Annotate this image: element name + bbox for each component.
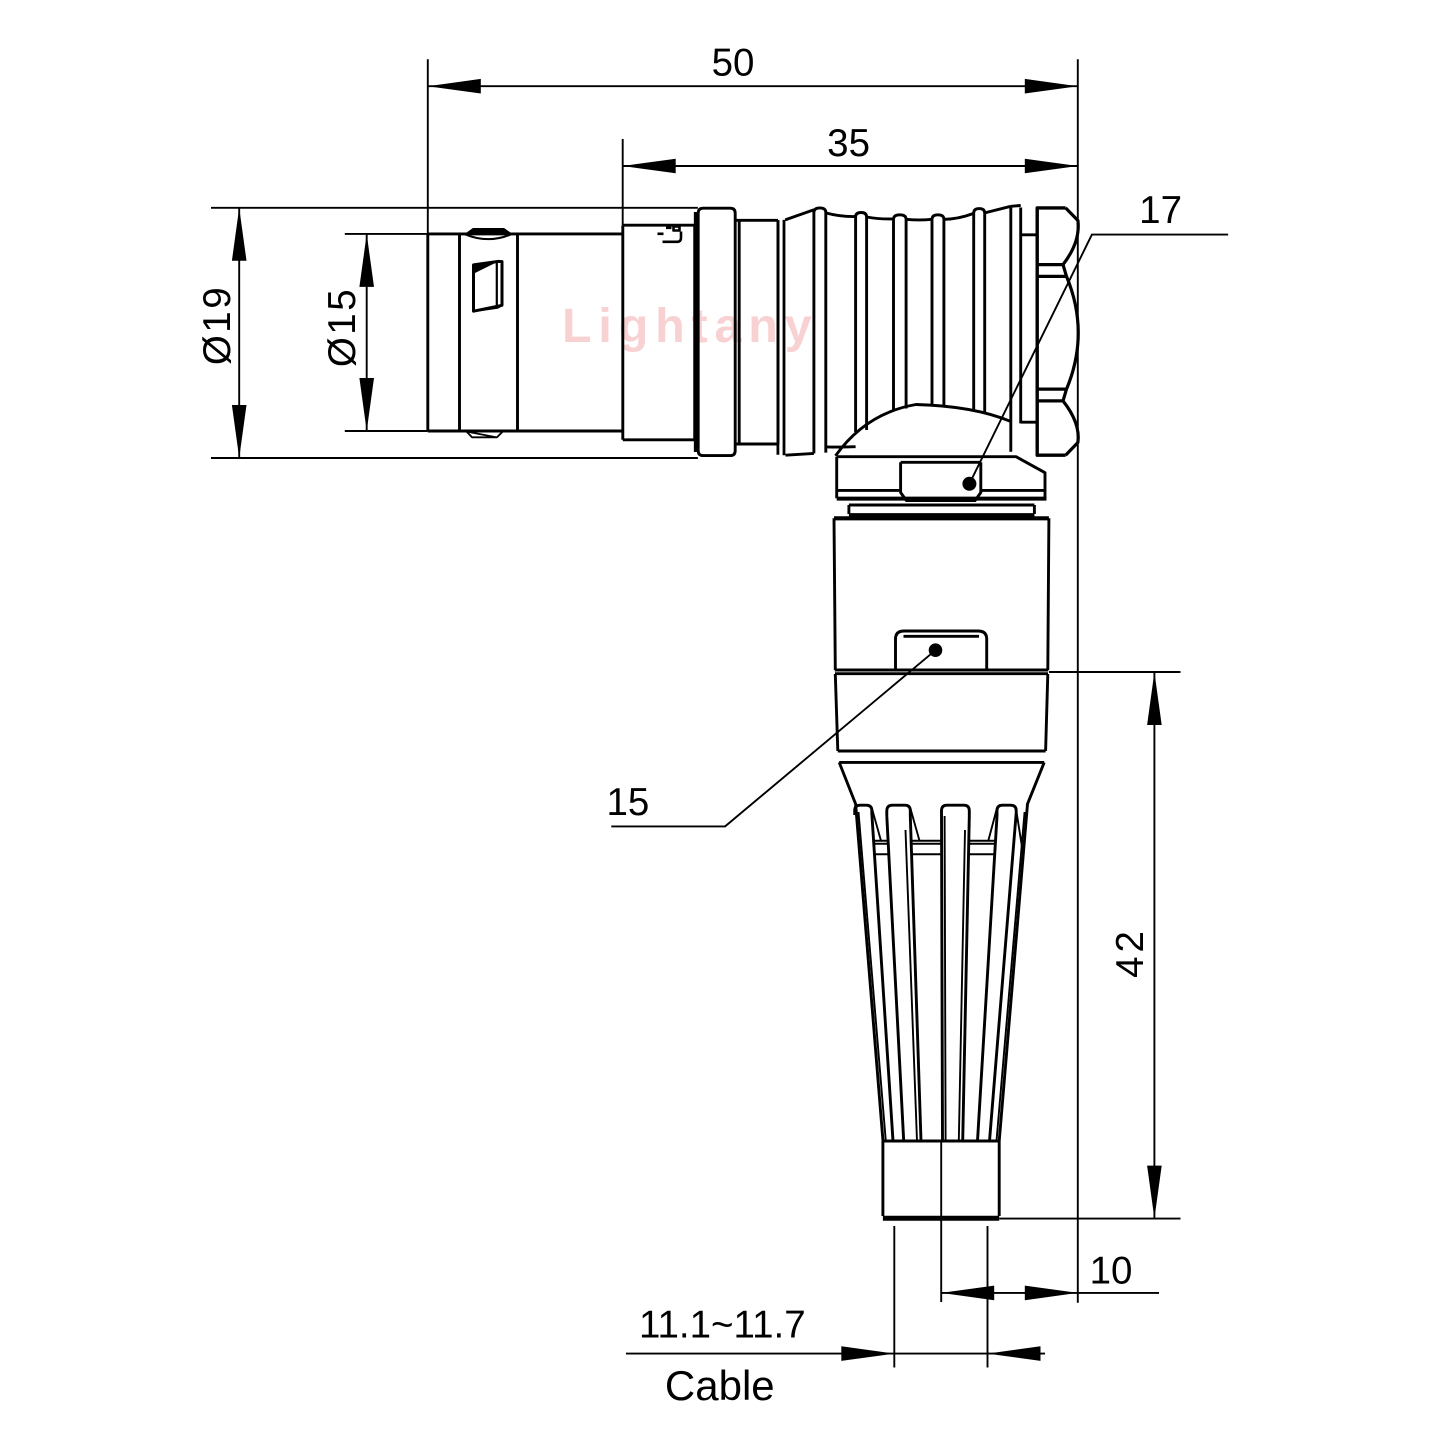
svg-text:Ø19: Ø19 xyxy=(196,285,239,365)
svg-text:42: 42 xyxy=(1109,927,1152,978)
svg-text:Cable: Cable xyxy=(665,1362,775,1409)
svg-text:10: 10 xyxy=(1090,1249,1133,1292)
svg-text:50: 50 xyxy=(712,42,755,85)
svg-text:35: 35 xyxy=(827,122,870,165)
svg-text:15: 15 xyxy=(606,781,649,824)
svg-text:Lightany: Lightany xyxy=(562,299,818,353)
svg-text:Ø15: Ø15 xyxy=(321,287,364,367)
svg-text:11.1~11.7: 11.1~11.7 xyxy=(639,1303,806,1346)
svg-text:17: 17 xyxy=(1139,189,1182,232)
